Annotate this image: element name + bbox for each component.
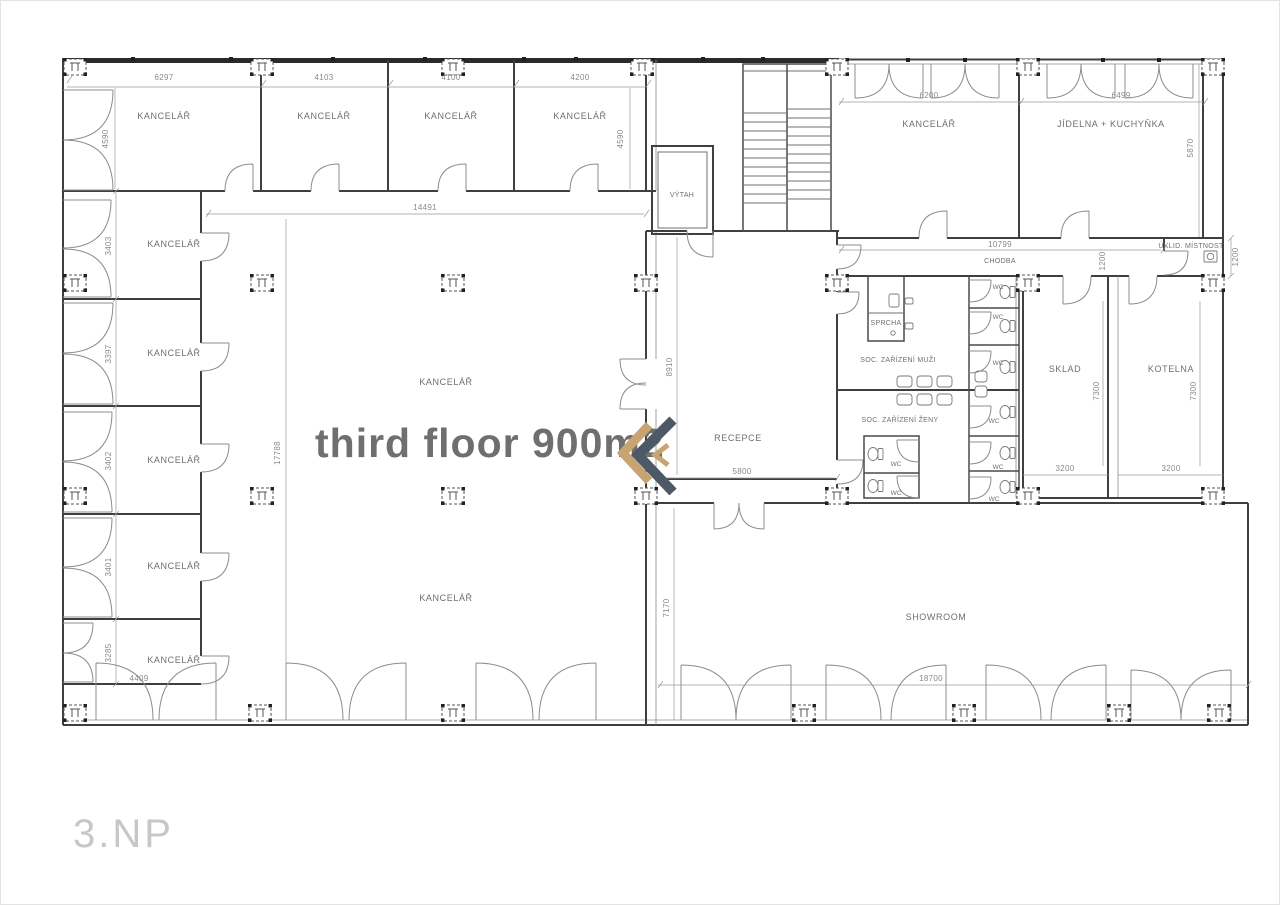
room-label-wc-5: WC: [993, 464, 1004, 471]
dim-office-left-3: 3402: [104, 451, 113, 470]
dim-left-office-width: 4409: [130, 674, 149, 683]
room-label-office-left-4: KANCELÁŘ: [147, 561, 200, 571]
floorplan-drawing: KANCELÁŘ KANCELÁŘ KANCELÁŘ KANCELÁŘ KANC…: [1, 1, 1280, 905]
dim-hall-width: 14491: [413, 203, 437, 212]
room-label-sanitary-women: SOC. ZAŘÍZENÍ ŽENY: [862, 415, 939, 424]
dim-dining-depth: 5870: [1186, 138, 1195, 157]
floor-area-annotation: third floor 900m2: [315, 420, 665, 466]
dim-cleaning-depth: 1200: [1231, 247, 1240, 266]
dim-corridor-width: 1200: [1098, 251, 1107, 270]
dim-office-top-1: 6297: [155, 73, 174, 82]
floor-number-label: 3.NP: [73, 812, 174, 856]
room-label-office-top-3: KANCELÁŘ: [424, 111, 477, 121]
room-label-reception: RECEPCE: [714, 433, 762, 443]
room-label-showroom: SHOWROOM: [906, 612, 967, 622]
dim-storage-width: 3200: [1056, 464, 1075, 473]
room-label-office-left-3: KANCELÁŘ: [147, 455, 200, 465]
dim-reception-width: 5800: [733, 467, 752, 476]
dim-boiler-depth: 7300: [1189, 381, 1198, 400]
room-labels: KANCELÁŘ KANCELÁŘ KANCELÁŘ KANCELÁŘ KANC…: [137, 111, 1224, 665]
shower-sink: [889, 294, 899, 307]
dim-hall-depth: 17788: [273, 441, 282, 465]
room-label-dining: JÍDELNA + KUCHYŇKA: [1057, 119, 1165, 129]
room-label-hall-upper: KANCELÁŘ: [419, 377, 472, 387]
room-label-office-left-5: KANCELÁŘ: [147, 655, 200, 665]
dim-boiler-width: 3200: [1162, 464, 1181, 473]
dim-reception-depth: 8910: [665, 357, 674, 376]
room-label-hall-lower: KANCELÁŘ: [419, 593, 472, 603]
dim-showroom-width: 18700: [919, 674, 943, 683]
dim-dining-width: 6499: [1112, 91, 1131, 100]
room-label-wc-4: WC: [989, 418, 1000, 425]
dim-storage-depth: 7300: [1092, 381, 1101, 400]
floor-drain: [891, 331, 895, 335]
dim-office-left-5: 3285: [104, 643, 113, 662]
dim-top-depth-left: 4590: [101, 129, 110, 148]
urinal: [975, 386, 987, 397]
room-label-elevator: VÝTAH: [670, 190, 694, 199]
room-label-wc-1: WC: [993, 284, 1004, 291]
dim-corridor-length: 10799: [988, 240, 1012, 249]
room-label-wc-3: WC: [993, 360, 1004, 367]
staircase: [743, 64, 831, 231]
room-label-shower: SPRCHA: [871, 320, 902, 327]
dimension-lines: [67, 64, 1251, 720]
dim-office-top-2: 4103: [315, 73, 334, 82]
room-label-wc-7: WC: [891, 461, 902, 468]
outer-walls: [63, 58, 1248, 725]
room-label-storage: SKLAD: [1049, 364, 1082, 374]
room-label-office-right: KANCELÁŘ: [902, 119, 955, 129]
room-label-office-left-1: KANCELÁŘ: [147, 239, 200, 249]
dim-office-left-1: 3403: [104, 236, 113, 255]
room-label-wc-6: WC: [989, 496, 1000, 503]
dim-office-top-4: 4200: [571, 73, 590, 82]
inner-walls: [63, 60, 1248, 725]
room-label-office-left-2: KANCELÁŘ: [147, 348, 200, 358]
dimension-labels: 6297 4103 4100 4200 4590 4590 3403 3397 …: [101, 73, 1240, 683]
dim-office-top-3: 4100: [442, 73, 461, 82]
room-label-office-top-2: KANCELÁŘ: [297, 111, 350, 121]
dim-right-office-width: 6200: [920, 91, 939, 100]
dim-top-depth-right: 4590: [616, 129, 625, 148]
room-label-office-top-4: KANCELÁŘ: [553, 111, 606, 121]
dim-office-left-4: 3401: [104, 557, 113, 576]
dim-office-left-2: 3397: [104, 344, 113, 363]
room-label-cleaning: ÚKLID. MÍSTNOST: [1158, 241, 1224, 250]
elevator-shaft: [652, 146, 713, 234]
room-label-sanitary-men: SOC. ZAŘÍZENÍ MUŽI: [860, 355, 935, 364]
room-label-wc-8: WC: [891, 490, 902, 497]
room-label-wc-2: WC: [993, 314, 1004, 321]
room-label-corridor: CHODBA: [984, 258, 1016, 265]
room-label-office-top-1: KANCELÁŘ: [137, 111, 190, 121]
floorplan-canvas: KANCELÁŘ KANCELÁŘ KANCELÁŘ KANCELÁŘ KANC…: [0, 0, 1280, 905]
dim-showroom-depth: 7170: [662, 598, 671, 617]
room-label-boiler: KOTELNA: [1148, 364, 1194, 374]
